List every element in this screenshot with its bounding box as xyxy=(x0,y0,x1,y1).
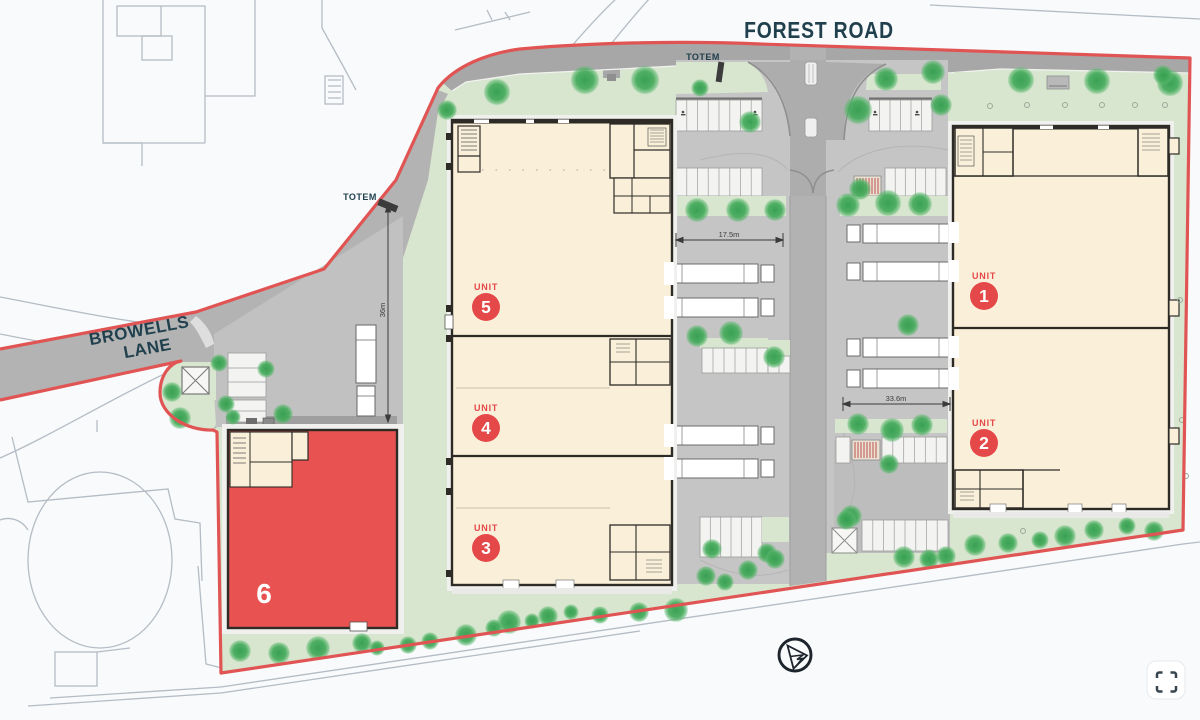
svg-text:2: 2 xyxy=(979,433,989,453)
svg-text:17.5m: 17.5m xyxy=(719,230,740,239)
svg-text:UNIT: UNIT xyxy=(474,523,498,533)
svg-text:1: 1 xyxy=(979,286,989,306)
svg-text:3: 3 xyxy=(481,538,491,558)
svg-text:36m: 36m xyxy=(378,303,387,318)
svg-text:TOTEM: TOTEM xyxy=(343,192,377,202)
svg-text:4: 4 xyxy=(481,418,491,438)
svg-text:UNIT: UNIT xyxy=(972,271,996,281)
svg-text:UNIT: UNIT xyxy=(474,282,498,292)
svg-text:TOTEM: TOTEM xyxy=(686,52,720,62)
svg-text:6: 6 xyxy=(256,578,272,609)
svg-text:5: 5 xyxy=(481,297,491,317)
svg-text:FOREST ROAD: FOREST ROAD xyxy=(744,19,894,44)
svg-text:33.6m: 33.6m xyxy=(886,394,907,403)
svg-text:UNIT: UNIT xyxy=(474,403,498,413)
svg-text:UNIT: UNIT xyxy=(972,418,996,428)
